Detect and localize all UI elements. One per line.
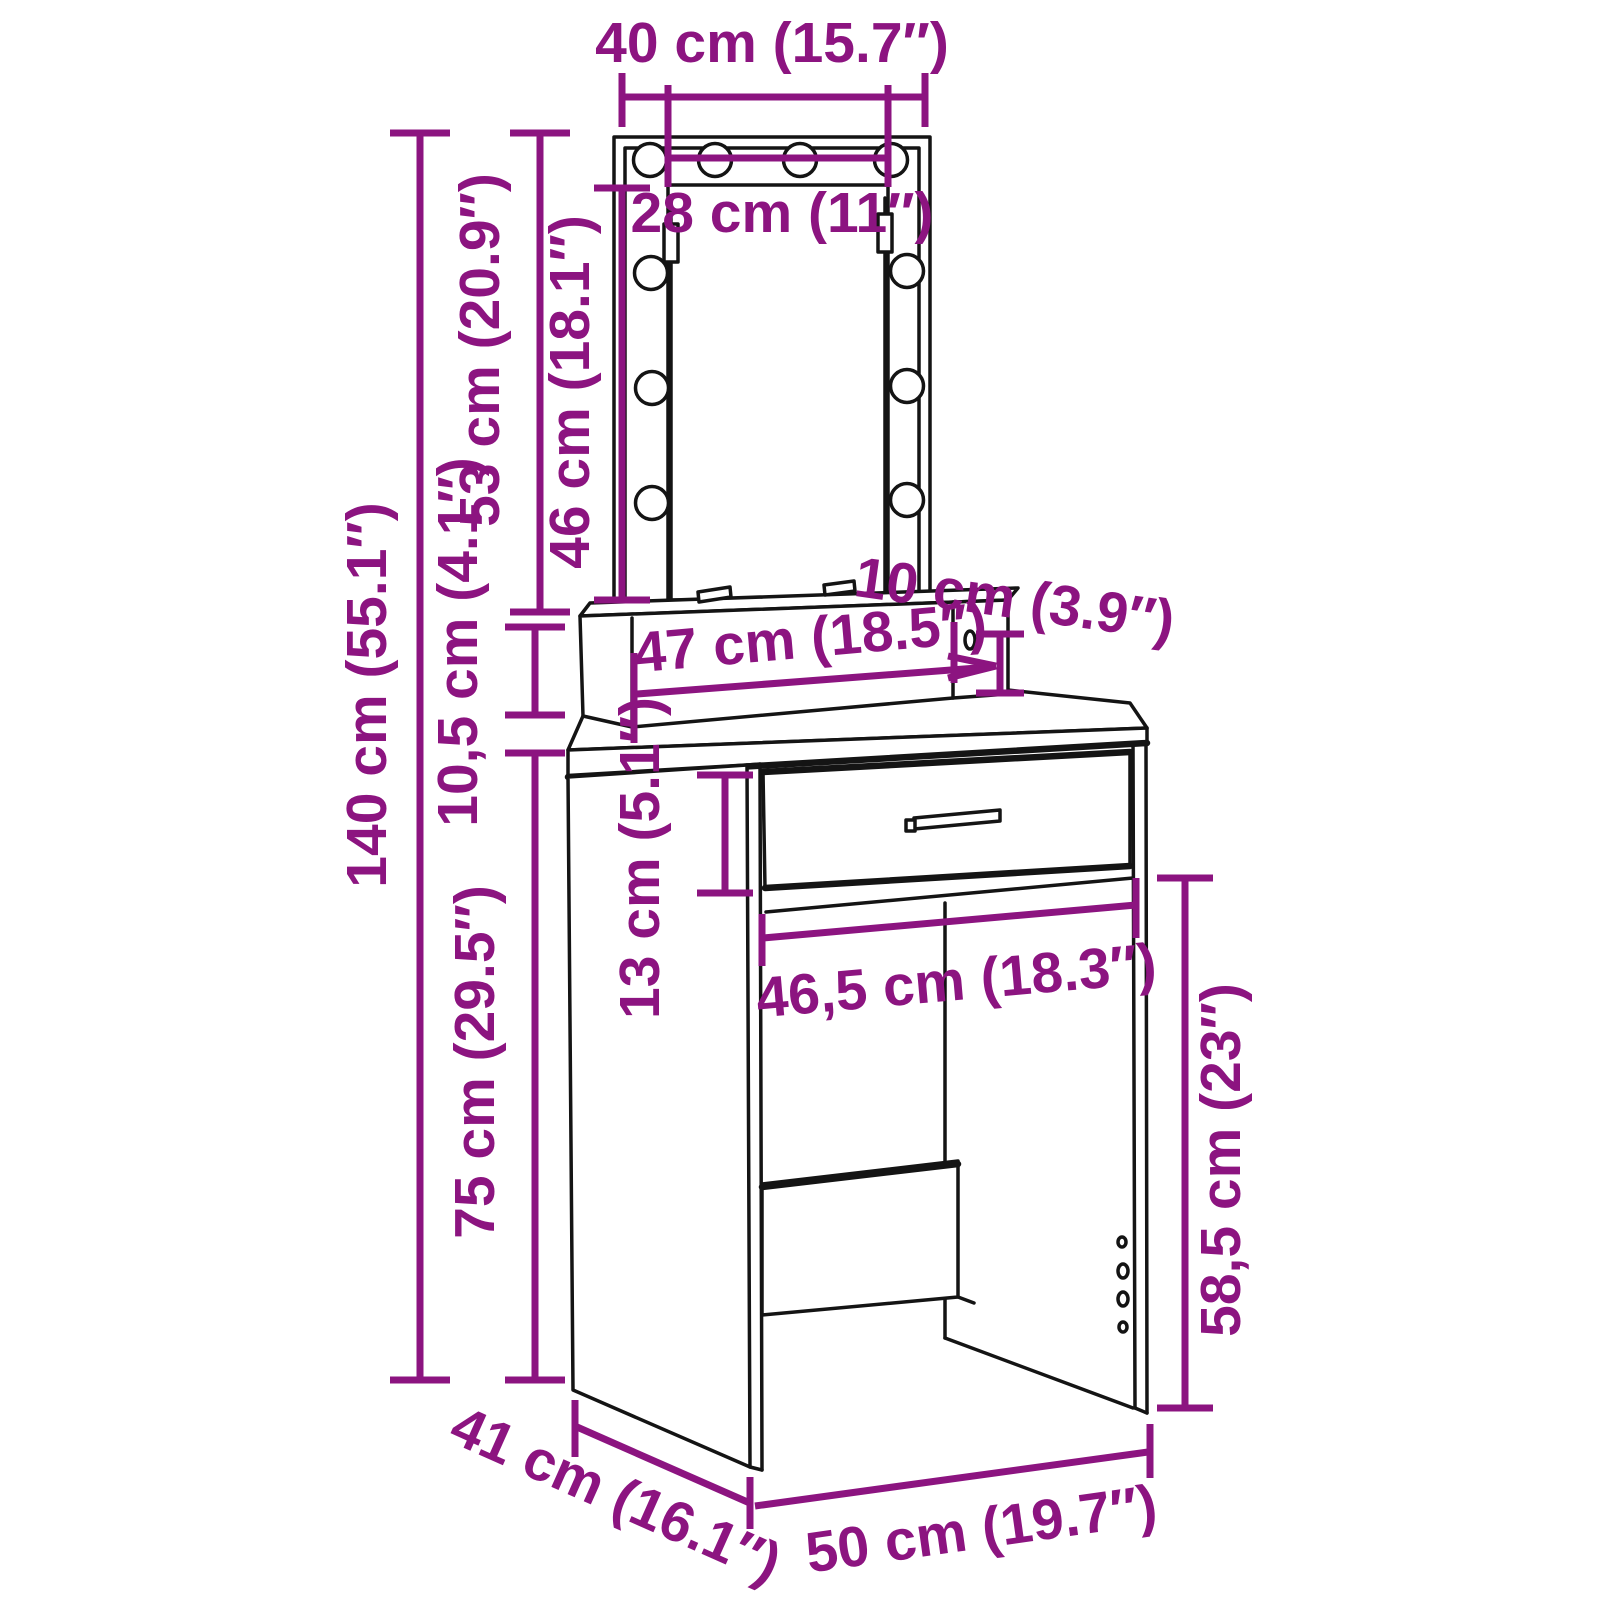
led-bulb-icon bbox=[634, 144, 667, 177]
dim-width: 50 cm (19.7″) bbox=[755, 1424, 1161, 1585]
right-panel-front-inner-edge bbox=[1133, 743, 1135, 1408]
led-bulb-icon bbox=[635, 257, 668, 290]
mirror-glass bbox=[668, 185, 888, 600]
led-bulb-icon bbox=[636, 372, 669, 405]
right-panel-bottom-edge bbox=[945, 1338, 1133, 1408]
dim-label-mirror-inner-height: 46 cm (18.1″) bbox=[538, 215, 602, 569]
diagram-page: 40 cm (15.7″) 28 cm (11″) 140 cm (55.1″)… bbox=[0, 0, 1600, 1600]
dim-mirror-width: 40 cm (15.7″) bbox=[595, 11, 949, 127]
assembly-holes bbox=[1118, 1237, 1128, 1332]
vanity-dimension-diagram: 40 cm (15.7″) 28 cm (11″) 140 cm (55.1″)… bbox=[0, 0, 1600, 1600]
kick-panel bbox=[762, 1161, 974, 1315]
kick-panel-thickness bbox=[958, 1297, 974, 1303]
dim-legroom-height: 58,5 cm (23″) bbox=[1157, 878, 1253, 1408]
left-panel-bottom-edge bbox=[750, 1467, 762, 1470]
right-panel-bottom-front bbox=[1135, 1408, 1147, 1413]
assembly-hole bbox=[1118, 1237, 1126, 1247]
left-panel-front-edge bbox=[760, 764, 762, 1470]
dim-label-total-height: 140 cm (55.1″) bbox=[335, 502, 399, 887]
drawer-handle-endcap bbox=[906, 820, 915, 831]
right-panel-front-outer-edge bbox=[1146, 743, 1147, 1413]
dim-label-drawer-height: 13 cm (5.1″) bbox=[608, 697, 672, 1019]
dim-label-desk-height: 75 cm (29.5″) bbox=[443, 885, 507, 1239]
dim-opening-width: 46,5 cm (18.3″) bbox=[754, 878, 1159, 1030]
dim-label-opening-width: 46,5 cm (18.3″) bbox=[754, 932, 1159, 1031]
dim-desk-height: 75 cm (29.5″) bbox=[443, 753, 565, 1380]
led-bulb-icon bbox=[636, 487, 669, 520]
mirror-clip-right bbox=[824, 581, 855, 595]
dim-label-mirror-inner-width: 28 cm (11″) bbox=[631, 181, 934, 245]
dim-label-mirror-width: 40 cm (15.7″) bbox=[595, 11, 949, 75]
assembly-hole bbox=[1118, 1264, 1128, 1278]
led-bulb-icon bbox=[891, 255, 924, 288]
dim-label-legroom-height: 58,5 cm (23″) bbox=[1189, 983, 1253, 1337]
left-panel-top-edge bbox=[747, 764, 760, 765]
dim-label-shelf-riser-height: 10,5 cm (4.1″) bbox=[426, 457, 490, 827]
led-bulb-icon bbox=[891, 484, 924, 517]
drawer bbox=[763, 752, 1133, 912]
led-bulb-icon bbox=[891, 370, 924, 403]
assembly-hole bbox=[1118, 1292, 1128, 1306]
assembly-hole bbox=[1119, 1322, 1127, 1332]
